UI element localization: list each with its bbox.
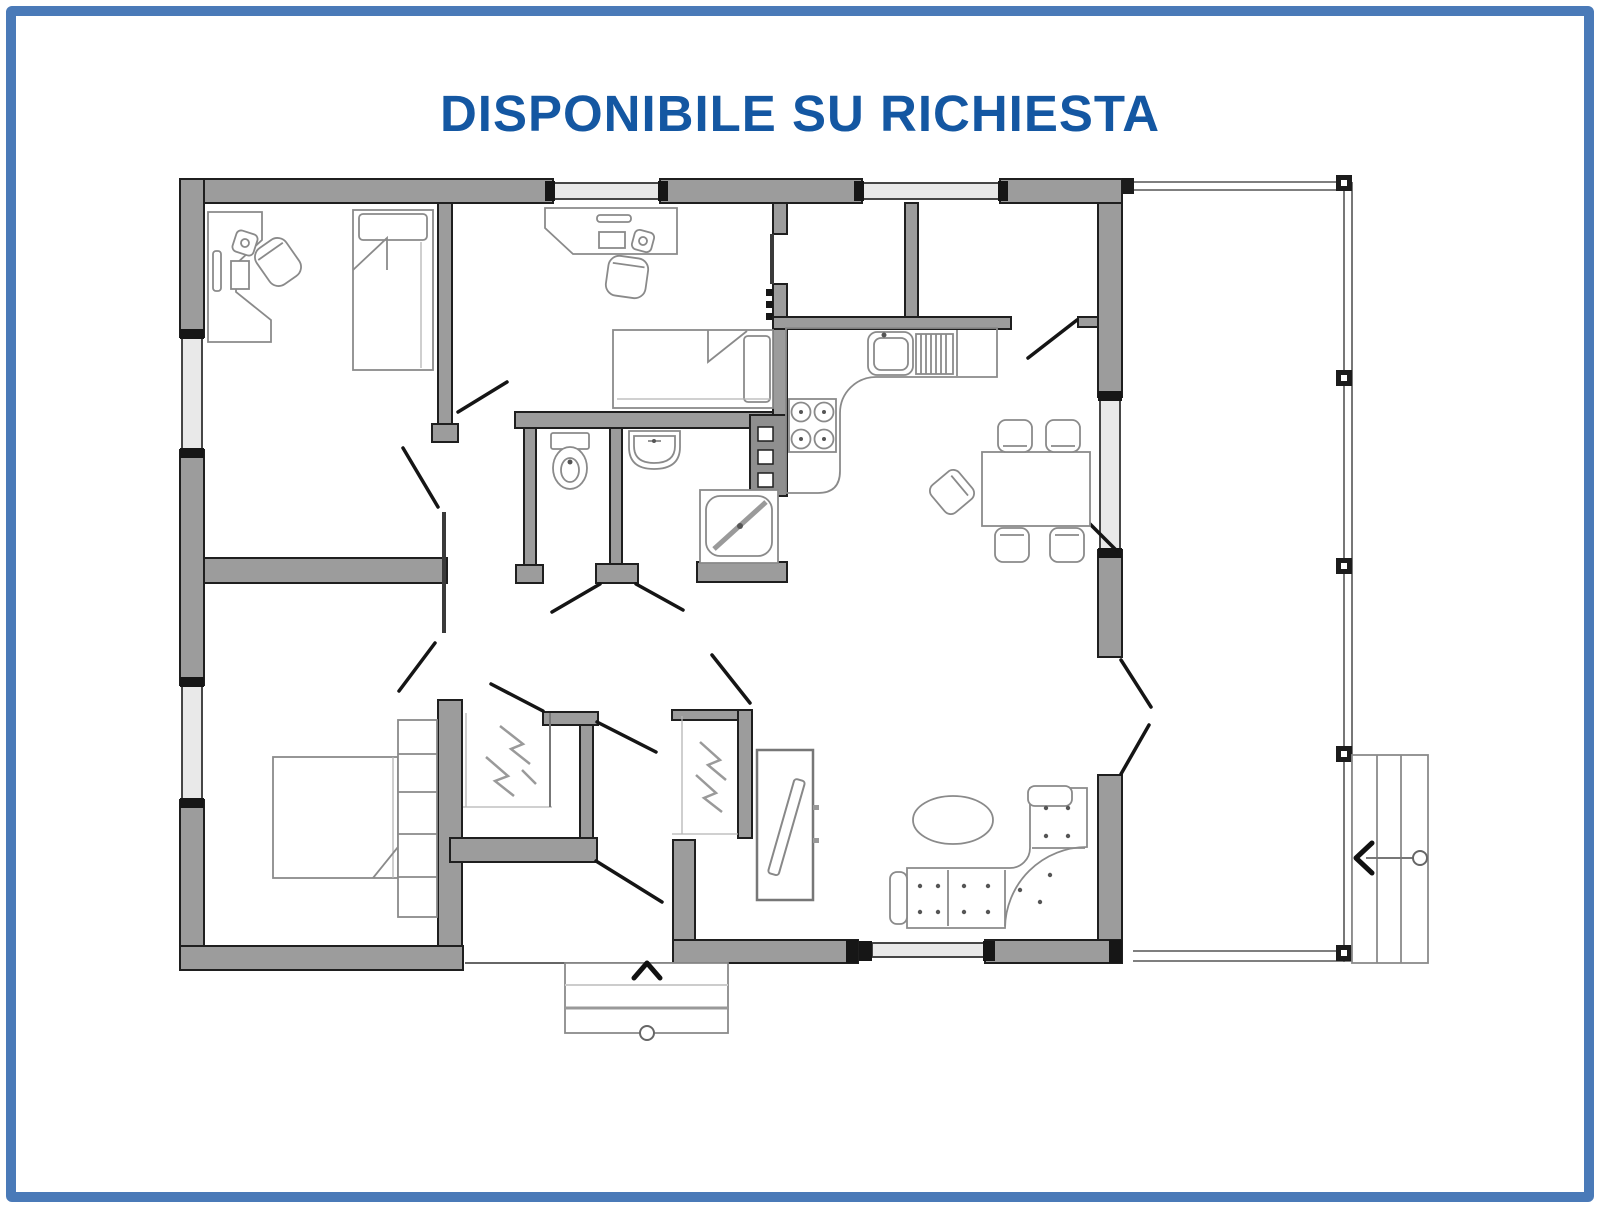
coffee-table-icon [913, 796, 993, 844]
tv-cabinet-icon [757, 750, 819, 900]
door-bedroom2 [458, 382, 507, 412]
window-left-master [180, 677, 204, 808]
kitchen-counter [786, 328, 997, 493]
dining-chair-icon [998, 420, 1032, 452]
office-chair-icon [604, 254, 649, 299]
porch [1122, 175, 1352, 962]
door-master [399, 643, 435, 691]
walk-in-closet [463, 713, 552, 807]
single-bed-icon [613, 330, 773, 408]
door-hall [597, 722, 656, 752]
side-steps [1352, 755, 1428, 963]
window-top-pantry [854, 181, 1008, 201]
bathroom-fixtures [551, 431, 778, 563]
monitor-icon [213, 251, 221, 291]
closets [463, 713, 738, 834]
entrance-closet [672, 716, 738, 834]
window-left-bedroom1 [180, 329, 204, 458]
door-pantry [1028, 320, 1077, 358]
hangers-icon [486, 757, 514, 796]
door-living [712, 655, 750, 703]
door-bathroom [636, 584, 683, 610]
hangers-icon [522, 770, 536, 784]
porch-bracket [1122, 178, 1134, 194]
master-bedroom-furniture [273, 720, 437, 917]
bedroom2-furniture [545, 208, 773, 408]
door-toilet [552, 584, 600, 612]
dining-chair-icon [995, 528, 1029, 562]
door-bedroom1 [403, 448, 438, 507]
dining-chair-icon [927, 467, 978, 518]
desk-lamp-icon [631, 229, 655, 253]
window-top-bedroom2 [545, 181, 668, 201]
porch-door-leaf-b [1121, 725, 1149, 774]
dining-table-icon [982, 452, 1090, 526]
kitchen-sink-icon [868, 332, 913, 375]
dining-set [927, 420, 1090, 562]
keyboard-icon [231, 261, 249, 289]
dining-chair-icon [1046, 420, 1080, 452]
double-bed-icon [273, 757, 398, 878]
kitchen [786, 328, 997, 493]
single-bed-icon [353, 210, 433, 370]
corner-shower-icon [700, 490, 778, 563]
boiler-flue [750, 415, 787, 496]
bedroom1-furniture [208, 210, 433, 370]
hangers-icon [500, 726, 530, 764]
porch-door-leaf-a [1121, 660, 1151, 707]
stove-icon [789, 399, 836, 452]
dining-chair-icon [1050, 528, 1084, 562]
hangers-icon [696, 775, 722, 812]
door-closet [491, 684, 543, 711]
window-bottom-living [858, 941, 995, 961]
shelf-column-icon [398, 720, 437, 917]
toilet-icon [551, 433, 589, 489]
floor-plan [0, 0, 1600, 1208]
window-right-dining [1098, 391, 1122, 558]
keyboard-icon [599, 232, 625, 248]
entry-steps [465, 963, 728, 1040]
flyer-page: DISPONIBILE SU RICHIESTA [0, 0, 1600, 1208]
hangers-icon [700, 742, 726, 780]
living-room-furniture [757, 750, 1087, 928]
front-door [596, 861, 662, 902]
washbasin-icon [629, 431, 680, 469]
dish-drainer-icon [916, 334, 953, 374]
